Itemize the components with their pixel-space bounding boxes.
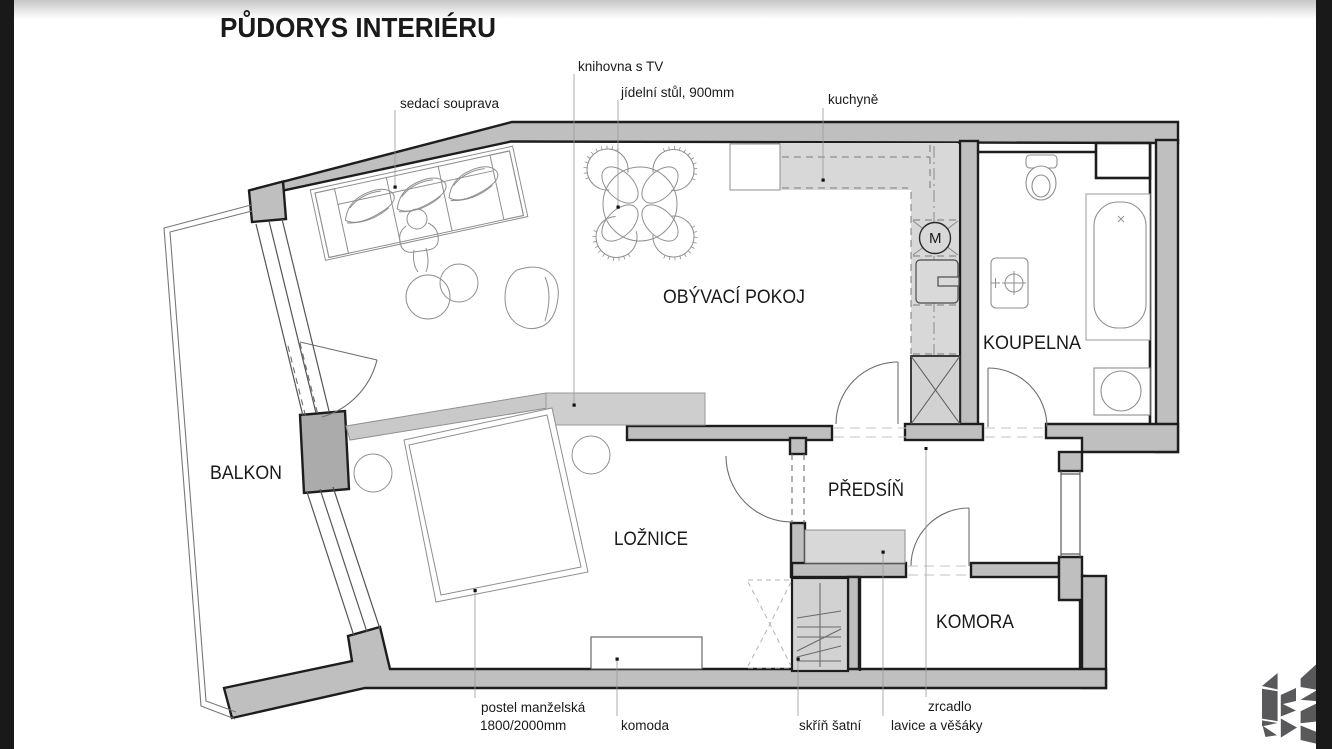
svg-text:postel manželská: postel manželská [481,700,586,715]
svg-text:PŘEDSÍŇ: PŘEDSÍŇ [828,478,904,501]
svg-text:KOUPELNA: KOUPELNA [983,332,1081,354]
svg-text:lavice a věšáky: lavice a věšáky [891,718,983,733]
svg-text:OBÝVACÍ POKOJ: OBÝVACÍ POKOJ [663,285,805,308]
svg-text:kuchyně: kuchyně [828,92,878,107]
svg-text:PŮDORYS INTERIÉRU: PŮDORYS INTERIÉRU [220,10,496,43]
svg-text:BALKON: BALKON [210,462,282,484]
svg-text:zrcadlo: zrcadlo [928,699,972,714]
svg-text:LOŽNICE: LOŽNICE [614,527,688,550]
svg-text:1800/2000mm: 1800/2000mm [480,718,566,733]
svg-text:KOMORA: KOMORA [936,611,1014,633]
svg-text:skříň šatní: skříň šatní [799,718,862,733]
svg-text:sedací souprava: sedací souprava [400,96,500,111]
svg-text:M: M [929,230,942,247]
svg-text:jídelní stůl, 900mm: jídelní stůl, 900mm [620,85,734,100]
svg-text:komoda: komoda [621,718,670,733]
svg-text:knihovna s TV: knihovna s TV [578,59,663,74]
